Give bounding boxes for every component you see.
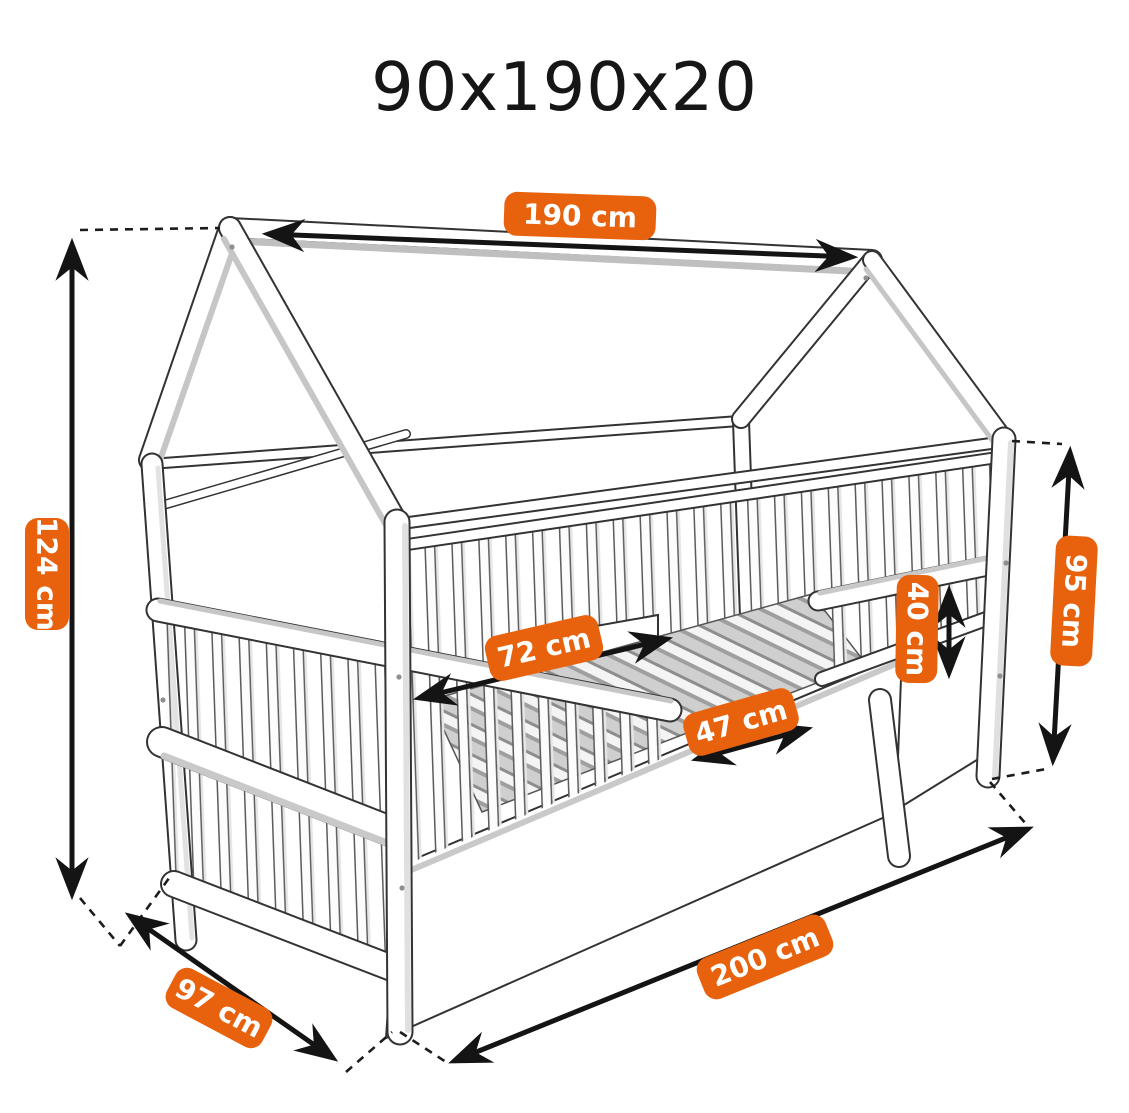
dim-label-124cm-text: 124 cm xyxy=(31,517,64,631)
front-left-post xyxy=(397,522,408,1032)
dim-label-97cm-text: 97 cm xyxy=(170,971,269,1045)
right-gable-front-rafter xyxy=(866,260,1001,444)
right-gable-back-rafter xyxy=(741,260,872,419)
house-bed-diagram: 190 cm 124 cm 95 cm 40 cm 72 cm 47 cm xyxy=(0,0,1129,1113)
dim-label-124cm: 124 cm xyxy=(25,517,69,631)
dim-label-40cm: 40 cm xyxy=(895,575,939,684)
diagram-canvas: 90x190x20 xyxy=(0,0,1129,1113)
front-right-post xyxy=(988,439,1011,777)
dim-label-95cm: 95 cm xyxy=(1050,535,1099,667)
back-eaves-beam xyxy=(150,421,739,464)
dim-label-190cm-text: 190 cm xyxy=(522,198,637,235)
dim-label-200cm: 200 cm xyxy=(693,911,837,1003)
left-gable-back-rafter xyxy=(150,228,238,466)
dim-label-200cm-text: 200 cm xyxy=(706,920,824,993)
dim-label-95cm-text: 95 cm xyxy=(1055,553,1093,649)
dim-label-40cm-text: 40 cm xyxy=(900,581,935,676)
dim-label-190cm: 190 cm xyxy=(503,191,656,240)
